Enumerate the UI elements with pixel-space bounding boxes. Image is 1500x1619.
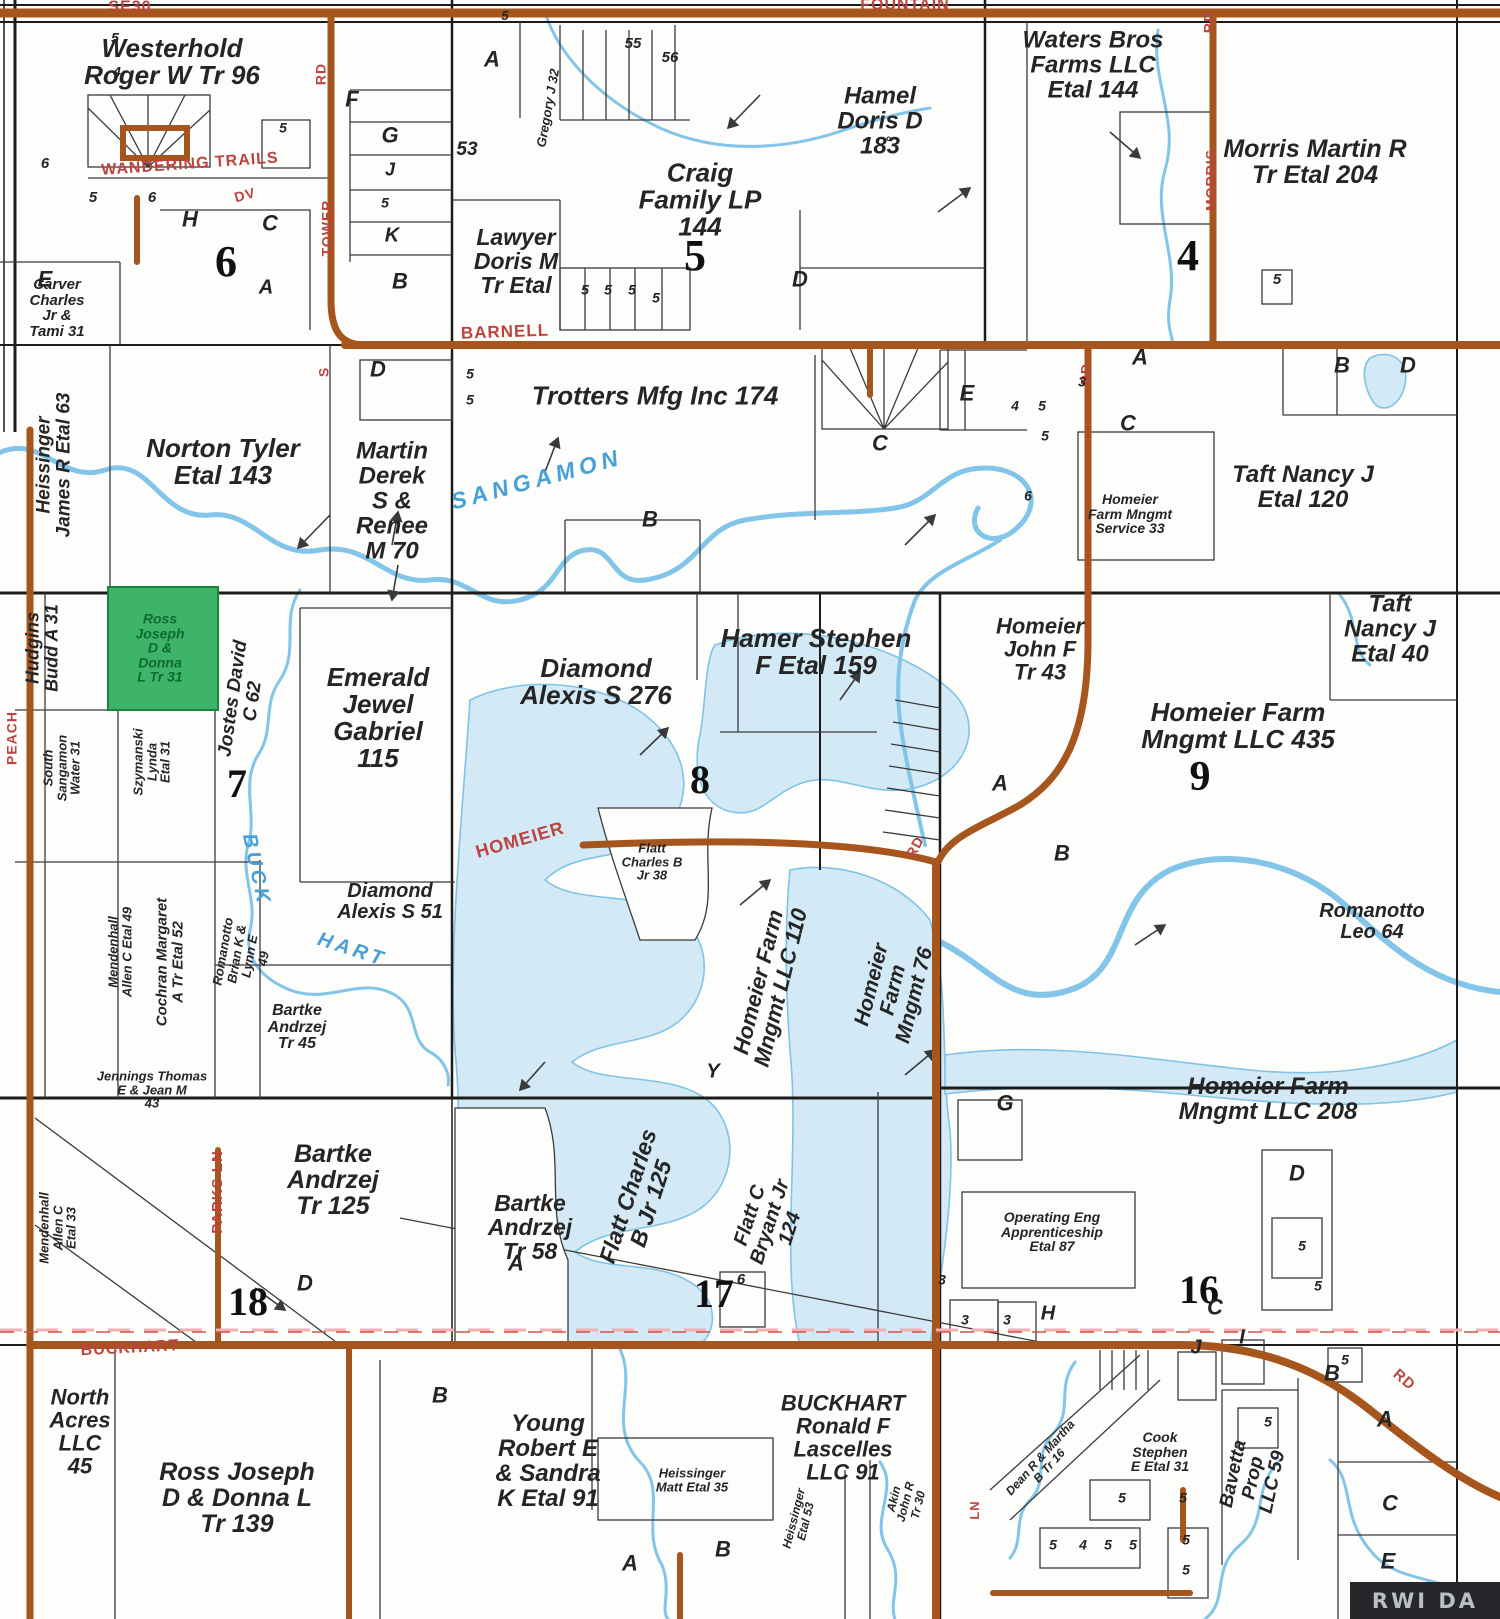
parcel-mark: 5 — [581, 283, 589, 298]
parcel-label-morris-martin[interactable]: Morris Martin R Tr Etal 204 — [1223, 136, 1406, 188]
parcel-mark: C — [872, 433, 888, 456]
parcel-mark: 5 — [1182, 1533, 1190, 1548]
parcel-label-ross-31[interactable]: Ross Joseph D & Donna L Tr 31 — [135, 612, 184, 685]
parcel-mark: 5 — [1038, 399, 1046, 414]
road-label: HOMEIER — [474, 818, 567, 861]
parcel-mark: J — [385, 161, 395, 180]
parcel-label-trotters[interactable]: Trotters Mfg Inc 174 — [532, 382, 779, 409]
parcel-mark: A — [259, 278, 273, 299]
parcel-label-flatt-38[interactable]: Flatt Charles B Jr 38 — [622, 842, 683, 883]
parcel-label-homeier-service[interactable]: Homeier Farm Mngmt Service 33 — [1088, 492, 1172, 536]
parcel-label-martin-derek[interactable]: Martin Derek S & Renee M 70 — [356, 440, 428, 565]
parcel-mark: 6 — [148, 190, 156, 206]
parcel-mark: F — [345, 89, 358, 112]
parcel-mark: I — [1239, 1328, 1245, 1349]
section-number: 17 — [694, 1273, 734, 1315]
section-number: 6 — [215, 239, 237, 285]
parcel-mark: 55 — [625, 36, 642, 52]
parcel-mark: C — [1120, 413, 1136, 436]
parcel-label-romanotto-brian[interactable]: Romanotto Brian K & Lynn E 49 — [210, 917, 275, 994]
parcel-label-norton[interactable]: Norton Tyler Etal 143 — [146, 435, 300, 489]
parcel-label-cook[interactable]: Cook Stephen E Etal 31 — [1131, 1430, 1189, 1474]
parcel-mark: 5 — [1179, 1491, 1187, 1506]
parcel-mark: B — [1054, 843, 1070, 866]
parcel-label-jennings[interactable]: Jennings Thomas E & Jean M 43 — [97, 1070, 208, 1111]
road-label: RD — [314, 63, 329, 85]
parcel-mark: A — [1132, 347, 1148, 370]
parcel-label-operating-eng[interactable]: Operating Eng Apprenticeship Etal 87 — [1001, 1210, 1103, 1254]
parcel-mark: 5 — [381, 196, 389, 211]
parcel-label-north-acres[interactable]: North Acres LLC 45 — [49, 1386, 110, 1478]
parcel-mark: 3 — [938, 1273, 946, 1288]
parcel-mark: 4 — [1079, 1538, 1087, 1553]
road-label: DV — [233, 185, 257, 205]
parcel-label-waters-bros[interactable]: Waters Bros Farms LLC Etal 144 — [1023, 29, 1164, 104]
parcel-label-homeier-john[interactable]: Homeier John F Tr 43 — [996, 616, 1084, 685]
parcel-label-bartke-45[interactable]: Bartke Andrzej Tr 45 — [268, 1003, 327, 1053]
parcel-mark: B — [392, 271, 408, 294]
parcel-mark: A — [484, 49, 500, 72]
parcel-label-diamond-276[interactable]: Diamond Alexis S 276 — [520, 655, 672, 709]
parcel-mark: A — [622, 1553, 638, 1576]
parcel-label-emerald[interactable]: Emerald Jewel Gabriel 115 — [327, 664, 430, 772]
parcel-mark: B — [1324, 1363, 1340, 1386]
parcel-label-bartke-125[interactable]: Bartke Andrzej Tr 125 — [287, 1141, 379, 1219]
parcel-label-lascelles[interactable]: BUCKHART Ronald F Lascelles LLC 91 — [781, 1392, 905, 1484]
road-label: S — [317, 367, 332, 377]
parcel-mark: 5 — [604, 283, 612, 298]
parcel-label-akin[interactable]: Akin John R Tr 30 — [883, 1478, 929, 1527]
parcel-label-young[interactable]: Young Robert E & Sandra K Etal 91 — [495, 1412, 600, 1512]
parcel-mark: 6 — [1024, 489, 1032, 504]
road-label: RD — [1202, 11, 1217, 33]
parcel-mark: G — [381, 125, 398, 148]
section-number: 4 — [1177, 233, 1199, 279]
water-label: BUCK — [238, 832, 274, 908]
parcel-label-gregory[interactable]: Gregory J 32 — [534, 68, 561, 149]
section-number: 5 — [684, 233, 706, 279]
parcel-label-taft-120[interactable]: Taft Nancy J Etal 120 — [1232, 463, 1374, 513]
parcel-mark: ° — [885, 135, 891, 150]
road-label: PEACH — [5, 711, 20, 765]
road-label: LN — [968, 1500, 982, 1519]
parcel-mark: B — [1334, 355, 1350, 378]
parcel-mark: C — [1207, 1297, 1223, 1320]
parcel-label-hamel[interactable]: Hamel Doris D 183 — [837, 85, 922, 160]
parcel-mark: 5 — [1264, 1415, 1272, 1430]
parcel-label-craig[interactable]: Craig Family LP 144 — [639, 159, 762, 240]
road-label: RD — [903, 834, 926, 860]
parcel-label-taft-40[interactable]: Taft Nancy J Etal 40 — [1344, 593, 1436, 668]
parcel-mark: 5 — [1118, 1491, 1126, 1506]
road-label: PARKS LN — [210, 1150, 226, 1234]
parcel-label-flatt-125[interactable]: Flatt Charles B Jr 125 — [596, 1126, 685, 1273]
parcel-label-heissinger-53[interactable]: Heissinger Etal 53 — [780, 1487, 819, 1553]
road-label: RD — [1390, 1366, 1418, 1393]
parcel-mark: 6 — [41, 156, 49, 172]
parcel-mark: E — [38, 269, 53, 292]
plat-map[interactable]: Westerhold Roger W Tr 96Carver Charles J… — [0, 0, 1500, 1619]
parcel-mark: B — [432, 1385, 448, 1408]
parcel-mark: 5 — [466, 367, 474, 382]
parcel-label-heissinger-63[interactable]: Heissinger James R Etal 63 — [34, 393, 74, 538]
parcel-label-jostes[interactable]: Jostes David C 62 — [215, 639, 270, 761]
parcel-mark: D — [1289, 1163, 1305, 1186]
parcel-mark: C — [262, 213, 278, 236]
parcel-label-ross-139[interactable]: Ross Joseph D & Donna L Tr 139 — [159, 1459, 315, 1537]
parcel-mark: D — [370, 359, 386, 382]
parcel-mark: D — [297, 1273, 313, 1296]
parcel-label-szymanski[interactable]: Szymanski Lynda Etal 31 — [132, 728, 173, 795]
parcel-mark: 5 — [1273, 272, 1281, 288]
parcel-mark: 53 — [456, 140, 477, 160]
parcel-mark: 5 — [652, 291, 660, 306]
road-label: MORRIS — [1204, 149, 1219, 211]
parcel-mark: 5 — [466, 393, 474, 408]
watermark-text: RWI DA — [1372, 1589, 1478, 1613]
parcel-label-dean[interactable]: Dean R & Martha B Tr 16 — [1004, 1418, 1087, 1506]
parcel-mark: A — [1377, 1409, 1393, 1432]
parcel-mark: C — [1382, 1493, 1398, 1516]
section-number: 8 — [690, 759, 710, 801]
road-label: BUCKHART — [80, 1338, 179, 1360]
parcel-label-lawyer[interactable]: Lawyer Doris M Tr Etal — [474, 226, 558, 298]
parcel-mark: Y — [706, 1062, 719, 1083]
water-label: SANGAMON — [449, 446, 626, 515]
road-label: WANDERING TRAILS — [101, 151, 280, 180]
parcel-mark: 4 — [1011, 399, 1019, 414]
parcel-label-homeier-76[interactable]: Homeier Farm Mngmt 76 — [849, 935, 936, 1046]
parcel-mark: J — [1190, 1338, 1201, 1359]
parcel-mark: 5 — [501, 9, 508, 23]
parcel-mark: 3 — [1078, 375, 1086, 390]
section-number: 9 — [1190, 756, 1211, 800]
parcel-mark: 4 — [113, 65, 121, 80]
parcel-mark: 5 — [1041, 429, 1049, 444]
road-label: BARNELL — [461, 322, 550, 343]
parcel-mark: A — [992, 773, 1008, 796]
parcel-mark: E — [1381, 1551, 1396, 1574]
road-label: TOWER — [320, 200, 335, 257]
parcel-label-homeier-435[interactable]: Homeier Farm Mngmt LLC 435 — [1141, 699, 1335, 753]
parcel-label-hudgins[interactable]: Hudgins Budd A 31 — [23, 604, 60, 692]
parcel-label-mendenhall-33[interactable]: Mendenhall Allen C Etal 33 — [38, 1192, 79, 1264]
parcel-label-hamer[interactable]: Hamer Stephen F Etal 159 — [721, 625, 912, 679]
parcel-mark: D — [1400, 355, 1416, 378]
parcel-mark: H — [182, 209, 198, 232]
parcel-label-flatt-124[interactable]: Flatt C Bryant Jr 124 — [727, 1171, 813, 1274]
parcel-mark: H — [1041, 1304, 1055, 1325]
section-number: 18 — [228, 1281, 268, 1323]
parcel-mark: 5 — [279, 121, 287, 136]
watermark: RWI DA — [1350, 1582, 1500, 1619]
parcel-label-homeier-110[interactable]: Homeier Farm Mngmt LLC 110 — [728, 901, 812, 1069]
parcel-mark: 3 — [1003, 1313, 1011, 1328]
parcel-mark: A — [508, 1253, 524, 1276]
parcel-mark: B — [642, 509, 658, 532]
parcel-mark: 5 — [628, 283, 636, 298]
road-label: SE30 — [108, 0, 151, 16]
parcel-label-homeier-208[interactable]: Homeier Farm Mngmt LLC 208 — [1179, 1075, 1358, 1125]
parcel-mark: D — [792, 269, 808, 292]
parcel-mark: 6 — [737, 1272, 745, 1288]
parcel-mark: K — [385, 226, 399, 247]
parcel-mark: 3 — [961, 1313, 969, 1328]
section-number: 7 — [227, 763, 247, 805]
parcel-mark: 5 — [1298, 1239, 1306, 1254]
parcel-mark: 5 — [1104, 1538, 1112, 1553]
parcel-mark: 5 — [1182, 1563, 1190, 1578]
road-label: FOUNTAIN — [860, 0, 949, 14]
parcel-label-bartke-58[interactable]: Bartke Andrzej Tr 58 — [488, 1192, 572, 1264]
parcel-label-cochran[interactable]: Cochran Margaret A Tr Etal 52 — [154, 898, 185, 1026]
parcel-mark: G — [996, 1093, 1013, 1116]
parcel-label-mendenhall-49[interactable]: Mendenhall Allen C Etal 49 — [106, 907, 133, 997]
parcel-mark: 5 — [1129, 1538, 1137, 1553]
parcel-mark: 5 — [1049, 1538, 1057, 1553]
parcel-mark: 5 — [1314, 1279, 1322, 1294]
parcel-mark: E — [960, 383, 975, 406]
parcel-mark: 5 — [1341, 1353, 1349, 1368]
parcel-mark: 5 — [111, 31, 119, 46]
parcel-mark: B — [715, 1539, 731, 1562]
label-layer: Westerhold Roger W Tr 96Carver Charles J… — [0, 0, 1500, 1619]
parcel-label-romanotto-leo[interactable]: Romanotto Leo 64 — [1319, 901, 1425, 943]
parcel-mark: 5 — [89, 190, 97, 206]
parcel-label-diamond-51[interactable]: Diamond Alexis S 51 — [337, 881, 443, 923]
parcel-label-bavetta[interactable]: Bavetta Prop LLC 59 — [1217, 1438, 1289, 1517]
parcel-label-south-sangamon[interactable]: South Sangamon Water 31 — [42, 735, 83, 801]
parcel-mark: 56 — [662, 50, 679, 66]
parcel-label-heissinger-35[interactable]: Heissinger Matt Etal 35 — [656, 1466, 728, 1493]
water-label: HART — [315, 929, 389, 971]
